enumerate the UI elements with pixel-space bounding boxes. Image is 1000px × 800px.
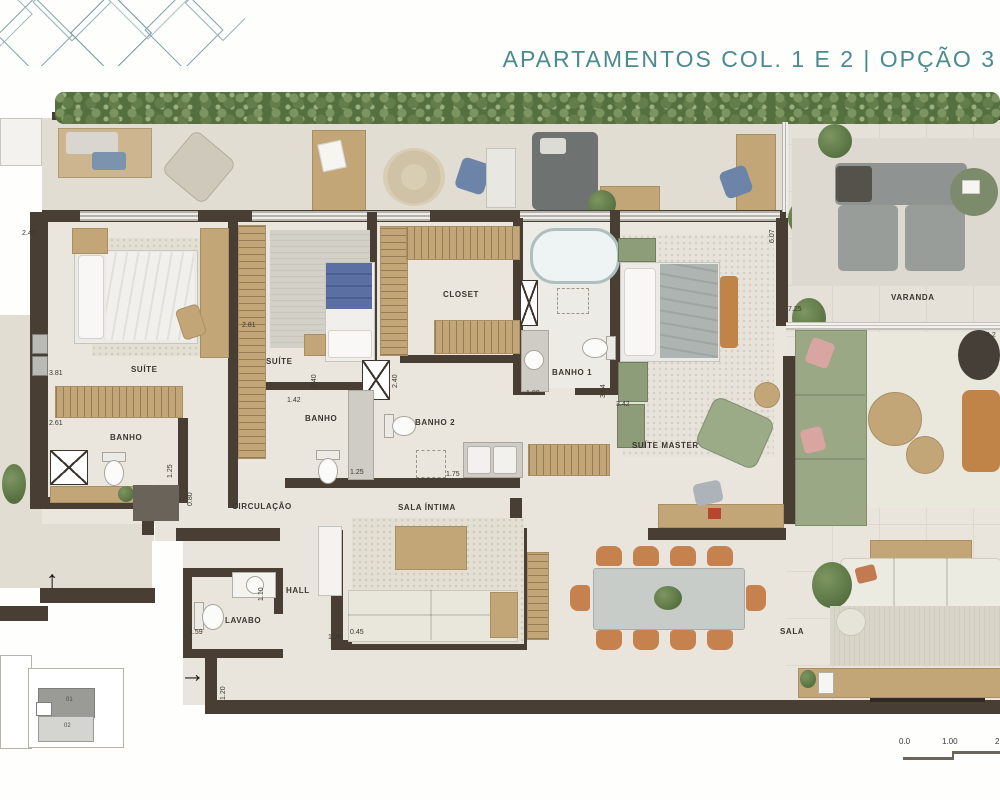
hall-closet bbox=[318, 526, 342, 596]
varanda-glass-top bbox=[782, 122, 788, 212]
room-label-suite-2: SUÍTE bbox=[266, 357, 293, 366]
suite2-cabinet-strip bbox=[238, 225, 266, 459]
room-label-banho-1: BANHO 1 bbox=[552, 368, 592, 377]
terrace-chaise-pillow-blue bbox=[92, 152, 126, 170]
dim-240-a: 2.40 bbox=[311, 374, 318, 388]
sala-intima-sofa-seam bbox=[430, 590, 432, 640]
suite2-bed-pillows bbox=[328, 330, 372, 358]
window-suite2 bbox=[252, 211, 430, 221]
room-label-lavabo: LAVABO bbox=[225, 616, 261, 625]
room-label-banho-2: BANHO 2 bbox=[415, 418, 455, 427]
dim-240-b: 2.40 bbox=[392, 374, 399, 388]
hedge-planter bbox=[55, 92, 1000, 124]
green-sofa-seam bbox=[795, 458, 865, 460]
dining-chair bbox=[596, 630, 622, 650]
keyplan-label-01: 01 bbox=[66, 697, 73, 703]
dim-125-a: 1.25 bbox=[167, 464, 174, 478]
terrace-round-rug bbox=[383, 148, 445, 206]
terrace-desk-2 bbox=[486, 148, 516, 208]
corridor-cabinet bbox=[133, 485, 179, 521]
stepped-outer-wall-b bbox=[0, 606, 48, 621]
master-side-stool bbox=[754, 382, 780, 408]
floor-plan-canvas: APARTAMENTOS COL. 1 E 2 | OPÇÃO 3 bbox=[0, 0, 1000, 800]
suite2-nightstand bbox=[304, 334, 326, 356]
suite-master-bottom-wall bbox=[648, 528, 786, 540]
dim-607: 6.07 bbox=[769, 229, 776, 243]
room-label-sala-intima: SALA ÍNTIMA bbox=[398, 503, 456, 512]
page-title: APARTAMENTOS COL. 1 E 2 | OPÇÃO 3 bbox=[503, 46, 996, 73]
sala-pouf bbox=[836, 608, 866, 636]
lavabo-left-wall bbox=[183, 568, 192, 658]
master-nightstand-top bbox=[618, 238, 656, 262]
dining-bookshelf bbox=[527, 552, 549, 640]
plant-icon bbox=[818, 124, 852, 158]
master-desk bbox=[658, 504, 784, 528]
dim-080: 0.80 bbox=[187, 492, 194, 506]
dim-281: 2.81 bbox=[242, 322, 256, 329]
closet-wardrobe-bottom bbox=[434, 320, 520, 354]
suite2-bed-duvet-blue bbox=[326, 263, 372, 309]
suite1-right-wall bbox=[228, 212, 238, 508]
dim-175: 1.75 bbox=[446, 471, 460, 478]
sofa-back-console bbox=[870, 540, 972, 560]
scale-label-0: 0.0 bbox=[899, 737, 910, 746]
banho1-bathtub bbox=[530, 228, 620, 284]
dim-180: 1.80 bbox=[526, 390, 540, 397]
room-label-suite-1: SUÍTE bbox=[131, 365, 158, 374]
master-nightstand-bottom bbox=[618, 362, 648, 402]
room-label-banho-esq: BANHO bbox=[110, 433, 142, 442]
room-label-suite-master: SUÍTE MASTER bbox=[632, 441, 699, 450]
armchair-tan bbox=[962, 390, 1000, 472]
dining-chair bbox=[707, 546, 733, 566]
green-sofa-seam bbox=[795, 394, 865, 396]
room-label-circulacao: CIRCULAÇÃO bbox=[232, 502, 292, 511]
dim-42: 4.2 bbox=[986, 332, 996, 339]
corridor-bottom-wall bbox=[176, 528, 280, 541]
suite1-desk bbox=[200, 228, 229, 358]
varanda-corner-table bbox=[836, 166, 872, 202]
tv-console-frame bbox=[818, 672, 834, 694]
dining-chair bbox=[570, 585, 590, 611]
plant-icon bbox=[812, 562, 852, 608]
up-arrow-icon: ↑ bbox=[46, 566, 59, 595]
dining-chair bbox=[707, 630, 733, 650]
white-mask-left-lower bbox=[152, 541, 183, 705]
lavabo-toilet-bowl bbox=[202, 604, 224, 630]
master-bed-blanket bbox=[660, 264, 718, 358]
suite1-nightstand bbox=[72, 228, 108, 254]
room-label-varanda: VARANDA bbox=[891, 293, 935, 302]
scale-label-1: 1.00 bbox=[942, 737, 958, 746]
dim-159: 1.59 bbox=[189, 629, 203, 636]
coffee-table-round-small bbox=[906, 436, 944, 474]
coffee-table-round bbox=[868, 392, 922, 446]
banho1-shower-dashed bbox=[557, 288, 589, 314]
cream-sofa-seam bbox=[946, 558, 948, 610]
banho2-toilet-bowl bbox=[392, 416, 416, 436]
keyplan-unit-01-notch bbox=[36, 702, 52, 716]
varanda-table-cards bbox=[962, 180, 980, 194]
master-bed-pillows bbox=[624, 268, 656, 356]
dining-chair bbox=[670, 630, 696, 650]
window-banho1 bbox=[520, 211, 610, 221]
dim-381: 3.81 bbox=[49, 370, 63, 377]
banhos-bottom-wall-a bbox=[285, 478, 475, 488]
keyplan-label-02: 02 bbox=[64, 723, 71, 729]
varanda-sofa-seat-left bbox=[838, 205, 898, 271]
banho1-cabinet bbox=[520, 280, 538, 326]
dim-342: 3.42 bbox=[616, 401, 630, 408]
plant-icon bbox=[2, 464, 26, 504]
room-label-sala: SALA bbox=[780, 627, 804, 636]
varanda-sofa-seat-right bbox=[905, 205, 965, 271]
scale-bar-low-segment bbox=[903, 757, 953, 760]
keyplan-unit-02 bbox=[38, 716, 94, 742]
dim-354: 3.54 bbox=[600, 384, 607, 398]
dryer-icon bbox=[493, 446, 517, 474]
room-label-banho-meio: BANHO bbox=[305, 414, 337, 423]
closet-wardrobe-top bbox=[406, 226, 520, 260]
dining-chair bbox=[596, 546, 622, 566]
sala-intima-side-table bbox=[490, 592, 518, 638]
brand-logo bbox=[0, 0, 245, 66]
dining-chair bbox=[633, 630, 659, 650]
varanda-sala-glass bbox=[786, 322, 1000, 330]
kitchen-appliance bbox=[32, 356, 48, 376]
terrace-chaise-cushion bbox=[66, 132, 118, 154]
banhos-bottom-wall-b bbox=[475, 478, 520, 488]
dining-chair bbox=[670, 546, 696, 566]
dining-chair bbox=[633, 546, 659, 566]
banho-meio-toilet-bowl bbox=[318, 458, 338, 484]
sala-intima-coffee-table bbox=[395, 526, 467, 570]
banho-esq-shower bbox=[50, 450, 88, 485]
closet-wardrobe-left bbox=[380, 226, 408, 356]
banho-esq-toilet-bowl bbox=[104, 460, 124, 486]
laundry-cabinet bbox=[528, 444, 610, 476]
terrace-daybed-pillow bbox=[540, 138, 566, 154]
entry-arrow-icon: → bbox=[180, 660, 205, 689]
dim-142: 1.42 bbox=[287, 397, 301, 404]
window-suite1 bbox=[80, 211, 198, 221]
dim-261: 2.61 bbox=[49, 420, 63, 427]
dining-chair bbox=[746, 585, 766, 611]
dim-136: 1.36 bbox=[328, 634, 342, 641]
cream-sofa-seam bbox=[893, 558, 895, 610]
washer-icon bbox=[467, 446, 491, 474]
dim-240-top: 2.40 bbox=[22, 230, 36, 237]
scale-label-2: 2 bbox=[995, 737, 999, 746]
master-bench bbox=[720, 276, 738, 348]
dim-110: 1.10 bbox=[258, 587, 265, 601]
dim-725: 7.25 bbox=[788, 306, 802, 313]
dim-045: 0.45 bbox=[350, 629, 364, 636]
sala-left-wall bbox=[783, 356, 795, 524]
plant-icon bbox=[118, 486, 134, 502]
banho1-toilet-bowl bbox=[582, 338, 608, 358]
banho-meio-vanity bbox=[348, 390, 374, 480]
plant-icon bbox=[800, 670, 816, 688]
master-desk-red-box bbox=[708, 508, 721, 519]
suite1-bed-pillows bbox=[78, 255, 104, 339]
dining-centerpiece-plant bbox=[654, 586, 682, 610]
room-label-hall: HALL bbox=[286, 586, 310, 595]
window-suite-master bbox=[620, 211, 780, 221]
planter-box-topleft bbox=[0, 118, 42, 166]
kitchen-appliance bbox=[32, 334, 48, 354]
banho2-shower-dashed bbox=[416, 450, 446, 478]
closet-bottom-wall bbox=[400, 355, 517, 363]
room-label-closet: CLOSET bbox=[443, 290, 479, 299]
bottom-wall bbox=[205, 700, 1000, 714]
suite-master-right-wall bbox=[776, 218, 788, 326]
banho-esq-right-wall bbox=[178, 418, 188, 503]
suite1-wardrobe bbox=[55, 386, 183, 418]
scale-bar-step bbox=[952, 751, 954, 760]
scale-bar-high-segment bbox=[952, 751, 1000, 754]
dim-125-b: 1.25 bbox=[350, 469, 364, 476]
lavabo-bottom-wall bbox=[183, 649, 283, 658]
banho1-sink bbox=[524, 350, 544, 370]
dim-120: 1.20 bbox=[220, 686, 227, 700]
